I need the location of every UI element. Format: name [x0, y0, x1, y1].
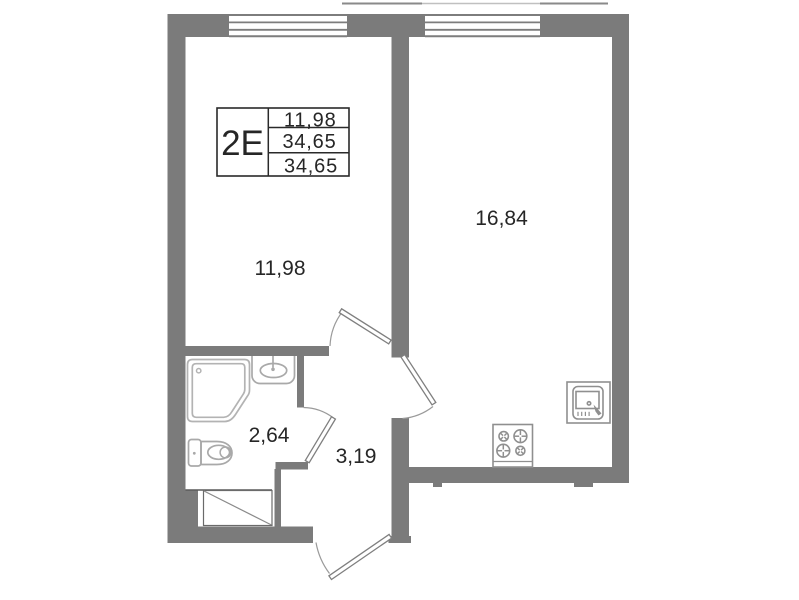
svg-text:34,65: 34,65	[284, 155, 338, 177]
svg-text:11,98: 11,98	[255, 257, 306, 280]
svg-text:34,65: 34,65	[282, 131, 336, 153]
svg-text:3,19: 3,19	[336, 445, 377, 468]
svg-text:16,84: 16,84	[475, 207, 528, 230]
svg-text:2,64: 2,64	[249, 424, 290, 447]
svg-text:2E: 2E	[221, 124, 264, 163]
svg-text:11,98: 11,98	[284, 109, 337, 131]
